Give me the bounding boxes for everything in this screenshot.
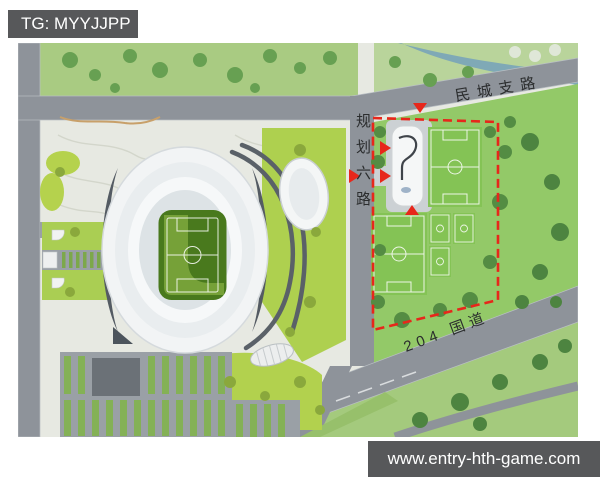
stadium — [102, 147, 268, 353]
tg-watermark: TG: MYYJJPP — [8, 10, 138, 38]
stadium-pitch — [159, 210, 227, 300]
training-building — [392, 126, 423, 206]
parking-dark-lot — [92, 358, 140, 396]
site-url-text: www.entry-hth-game.com — [388, 449, 581, 469]
site-plan-svg: 民城支路 204 国道 — [18, 43, 578, 437]
road-north — [18, 96, 360, 120]
site-url-watermark: www.entry-hth-game.com — [368, 441, 600, 477]
screenshot-root: 民城支路 204 国道 规划六路 TG: MYYJJPP www.entry-h… — [0, 0, 600, 480]
road-label-guihua-liulu: 规划六路 — [350, 113, 374, 217]
north-park — [40, 43, 358, 97]
tg-watermark-text: TG: MYYJJPP — [21, 14, 131, 34]
training-building-pool — [401, 187, 411, 193]
site-plan-rendering: 民城支路 204 国道 — [18, 43, 578, 437]
